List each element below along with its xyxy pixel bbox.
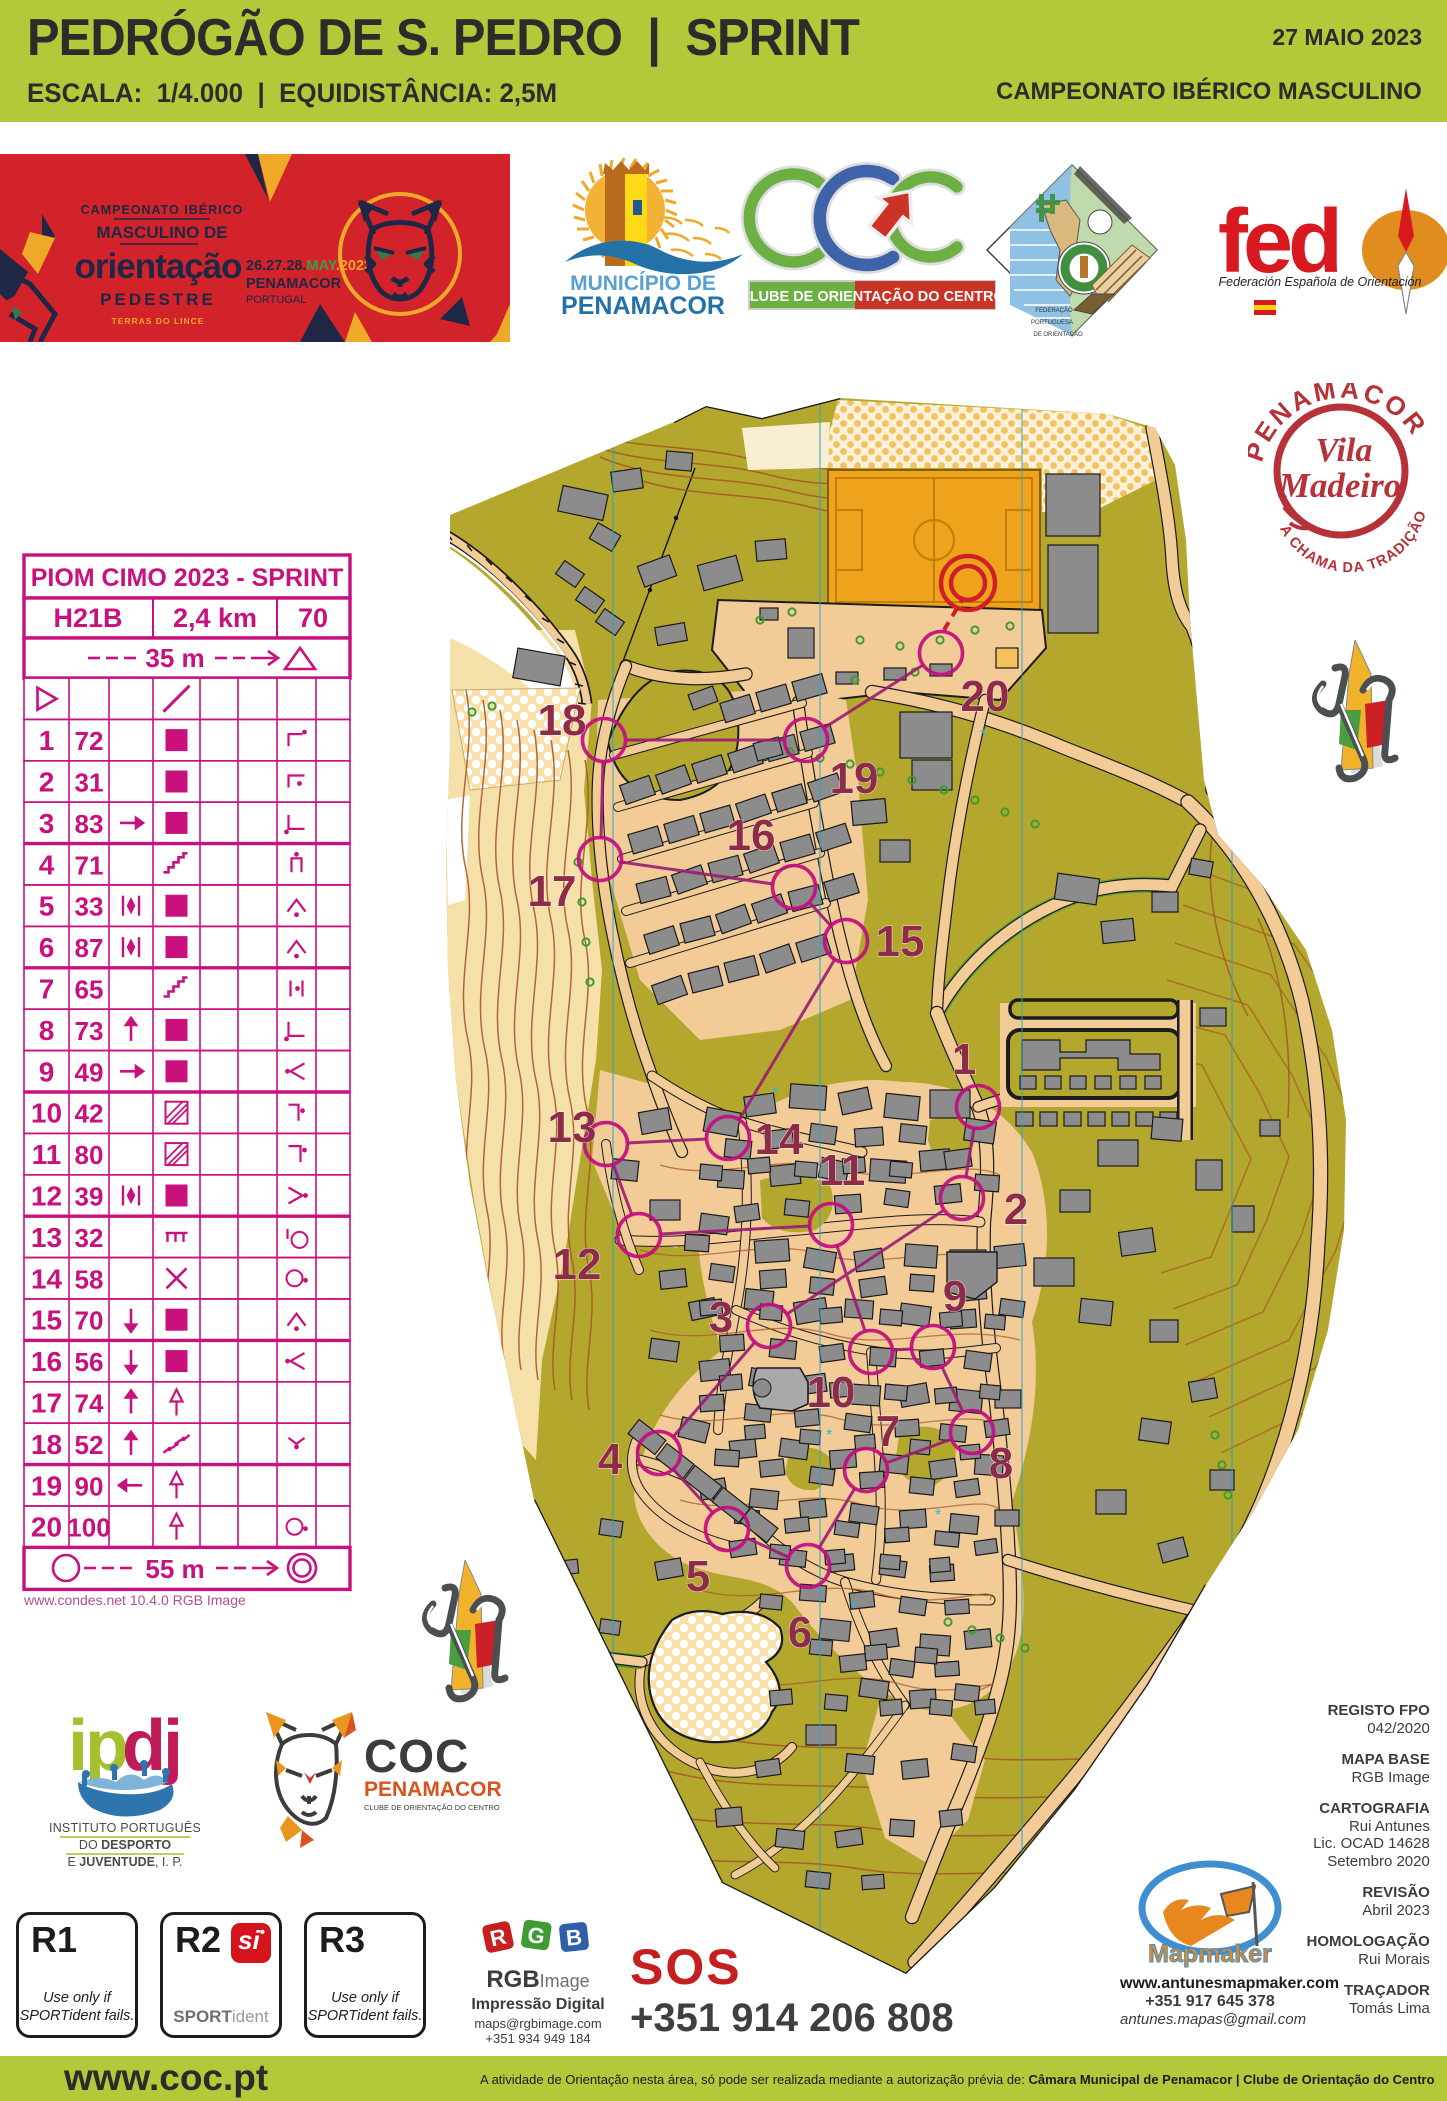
svg-text:18: 18: [538, 696, 587, 745]
svg-text:13: 13: [31, 1222, 62, 1253]
svg-text:*: *: [935, 1507, 941, 1524]
svg-text:42: 42: [75, 1099, 104, 1129]
svg-text:16: 16: [31, 1346, 62, 1377]
svg-text:12: 12: [31, 1181, 62, 1212]
svg-text:G: G: [526, 1922, 546, 1949]
svg-text:*: *: [772, 1085, 778, 1102]
svg-text:14: 14: [755, 1115, 804, 1164]
svg-text:70: 70: [75, 1306, 104, 1336]
svg-text:5: 5: [686, 1552, 710, 1601]
svg-text:11: 11: [819, 1146, 866, 1195]
svg-text:83: 83: [75, 809, 104, 839]
svg-text:49: 49: [75, 1057, 104, 1087]
svg-text:20: 20: [961, 672, 1010, 721]
svg-text:33: 33: [75, 892, 104, 922]
svg-text:5: 5: [39, 891, 55, 922]
svg-text:12: 12: [553, 1240, 602, 1289]
svg-text:65: 65: [75, 975, 104, 1005]
svg-text:H21B: H21B: [53, 603, 122, 633]
svg-text:15: 15: [31, 1305, 62, 1336]
svg-text:56: 56: [75, 1347, 104, 1377]
svg-text:18: 18: [31, 1429, 62, 1460]
svg-text:Madeiro: Madeiro: [1278, 466, 1402, 505]
svg-text:*: *: [826, 1427, 832, 1444]
svg-text:2: 2: [1004, 1185, 1028, 1234]
svg-text:19: 19: [31, 1470, 62, 1501]
svg-text:73: 73: [75, 1016, 104, 1046]
svg-text:4: 4: [39, 849, 55, 880]
svg-text:39: 39: [75, 1182, 104, 1212]
svg-text:*: *: [980, 727, 986, 744]
svg-text:16: 16: [727, 811, 776, 860]
svg-text:6: 6: [39, 932, 55, 963]
svg-text:6: 6: [788, 1608, 812, 1657]
svg-text:CLUBE DE ORIENTAÇÃO DO CENTRO: CLUBE DE ORIENTAÇÃO DO CENTRO: [364, 1803, 500, 1812]
svg-text:1: 1: [952, 1035, 976, 1084]
svg-text:15: 15: [876, 917, 925, 966]
svg-text:7: 7: [39, 974, 55, 1005]
svg-text:74: 74: [75, 1389, 104, 1419]
svg-text:COC: COC: [364, 1730, 469, 1782]
svg-text:87: 87: [75, 933, 104, 963]
svg-text:Mapmaker: Mapmaker: [1148, 1940, 1272, 1968]
svg-text:52: 52: [75, 1430, 104, 1460]
svg-text:8: 8: [39, 1015, 55, 1046]
svg-text:Vila: Vila: [1316, 432, 1373, 469]
svg-text:www.condes.net 10.4.0 RGB Imag: www.condes.net 10.4.0 RGB Image: [23, 1592, 246, 1608]
svg-text:32: 32: [75, 1223, 104, 1253]
svg-text:10: 10: [807, 1368, 856, 1417]
svg-text:ip: ip: [68, 1706, 127, 1786]
svg-text:DO DESPORTO: DO DESPORTO: [79, 1838, 171, 1852]
svg-text:35 m: 35 m: [145, 643, 204, 673]
svg-text:PENAMACOR: PENAMACOR: [364, 1778, 502, 1801]
svg-text:E JUVENTUDE, I. P.: E JUVENTUDE, I. P.: [67, 1855, 182, 1868]
svg-text:1: 1: [39, 725, 55, 756]
svg-text:B: B: [565, 1924, 583, 1951]
svg-text:58: 58: [75, 1264, 104, 1294]
svg-text:100: 100: [67, 1513, 110, 1543]
svg-text:3: 3: [39, 808, 55, 839]
svg-text:17: 17: [528, 867, 577, 916]
svg-text:55 m: 55 m: [145, 1554, 204, 1584]
svg-text:90: 90: [75, 1471, 104, 1501]
svg-text:PIOM CIMO 2023 - SPRINT: PIOM CIMO 2023 - SPRINT: [31, 564, 344, 592]
svg-text:8: 8: [989, 1439, 1013, 1488]
svg-text:17: 17: [31, 1388, 62, 1419]
svg-text:19: 19: [830, 754, 879, 803]
svg-text:71: 71: [75, 850, 104, 880]
svg-text:9: 9: [39, 1056, 55, 1087]
svg-text:14: 14: [31, 1263, 63, 1294]
svg-text:31: 31: [75, 768, 104, 798]
svg-text:7: 7: [876, 1407, 900, 1456]
svg-text:9: 9: [943, 1272, 967, 1321]
svg-text:13: 13: [548, 1103, 597, 1152]
svg-text:11: 11: [32, 1139, 62, 1170]
svg-text:dj: dj: [122, 1706, 180, 1786]
svg-text:80: 80: [75, 1140, 104, 1170]
svg-text:10: 10: [31, 1098, 62, 1129]
svg-text:20: 20: [31, 1512, 62, 1543]
svg-text:INSTITUTO PORTUGUÊS: INSTITUTO PORTUGUÊS: [50, 1820, 200, 1835]
svg-text:*: *: [850, 1599, 856, 1616]
svg-text:2: 2: [39, 767, 55, 798]
svg-text:70: 70: [298, 603, 328, 633]
svg-text:4: 4: [598, 1435, 623, 1484]
svg-text:72: 72: [75, 726, 104, 756]
svg-text:3: 3: [709, 1293, 733, 1342]
svg-text:2,4 km: 2,4 km: [173, 603, 257, 633]
